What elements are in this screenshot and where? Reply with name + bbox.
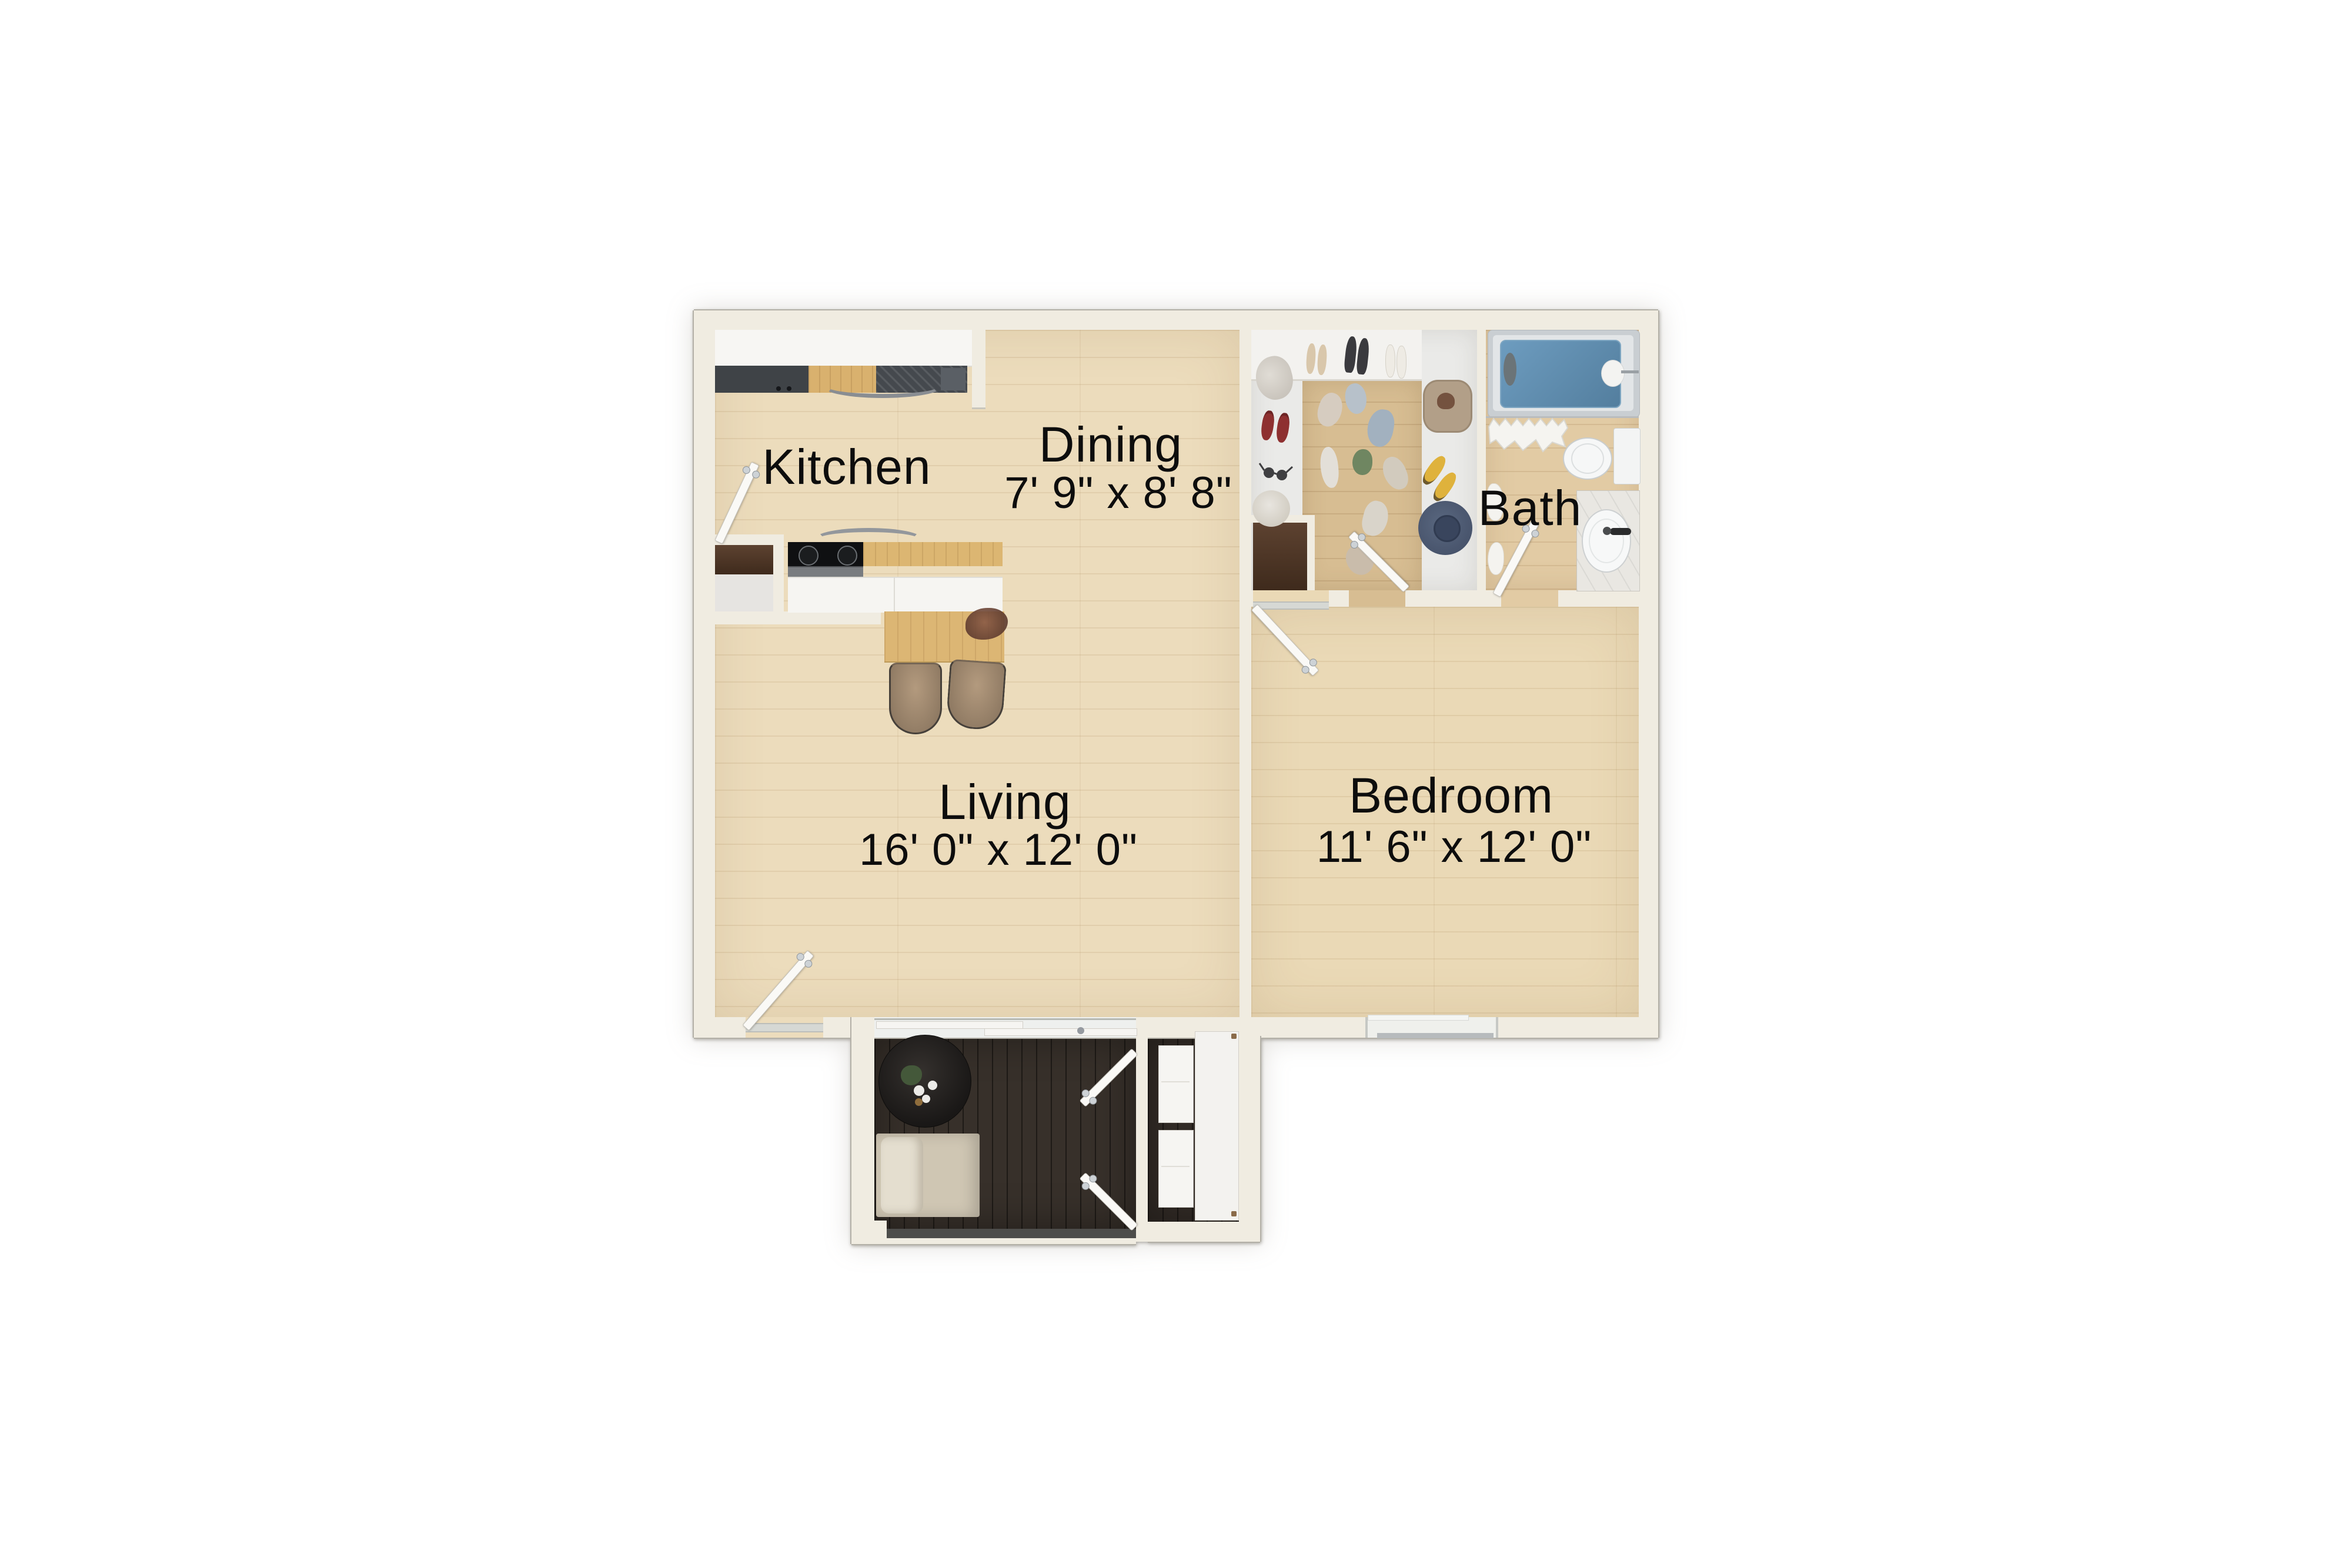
kitchen-cabinets-front	[788, 577, 1003, 613]
kitchen-counter-top	[715, 330, 972, 367]
storage-shelf-box	[1158, 1045, 1194, 1123]
kitchen-counter-dark	[715, 366, 808, 393]
bedroom-threshold	[1253, 601, 1329, 610]
patio-cup	[914, 1085, 924, 1096]
storage-shelf-box	[1158, 1130, 1194, 1208]
wall-kitchen-counter-stub	[694, 611, 881, 624]
tub-faucet	[1601, 360, 1625, 387]
wall-right	[1639, 310, 1658, 1038]
patio-bench-pillow	[881, 1137, 923, 1213]
wall-bottom	[694, 1017, 1658, 1038]
pantry-floor-light	[713, 574, 773, 611]
bath-pillow	[1504, 353, 1516, 386]
storage-door-hinge	[1231, 1034, 1237, 1039]
wall-patio-bottom-rim	[851, 1238, 1136, 1244]
bedroom-label: Bedroom	[1349, 771, 1553, 820]
floor-plan: Kitchen Dining 7' 9" x 8' 8" Bath Living…	[0, 0, 2352, 1568]
bath-label: Bath	[1478, 483, 1582, 533]
wall-divider-living-bedroom	[1240, 330, 1251, 1017]
peninsula-counter-wood	[863, 542, 1003, 566]
tub-faucet-wand	[1621, 370, 1639, 373]
white-sandal	[1396, 346, 1406, 379]
bath-door-opening	[1501, 590, 1558, 607]
toilet-seat-ring	[1571, 443, 1604, 474]
shower-curtain	[1486, 416, 1575, 477]
kitchen-label: Kitchen	[762, 442, 931, 492]
storage-door-panel	[1195, 1031, 1239, 1221]
wall-pantry-top	[694, 534, 784, 545]
white-sandal	[1385, 345, 1395, 377]
counter-knob	[787, 386, 791, 391]
sink-faucet-knob	[1603, 527, 1611, 535]
stove-burner	[799, 546, 818, 566]
wall-patio-right	[1136, 1036, 1148, 1242]
cabinet-seam	[894, 577, 895, 611]
vent-panel	[941, 368, 965, 390]
dining-chair	[889, 663, 942, 734]
living-label: Living	[938, 777, 1071, 827]
dining-label: Dining	[1039, 420, 1182, 469]
patio-cup	[928, 1081, 937, 1090]
dining-dims: 7' 9" x 8' 8"	[1004, 471, 1232, 516]
sliding-door-panel-moving	[984, 1028, 1137, 1036]
shelf-line	[1161, 1081, 1190, 1082]
hat-crown	[1434, 515, 1461, 542]
patio-round-table	[878, 1035, 971, 1128]
towel	[1488, 542, 1504, 575]
wall-patio-left-step	[874, 1221, 887, 1238]
patio-step	[887, 1229, 1136, 1238]
toilet-tank	[1613, 428, 1641, 484]
wall-closet-bath-divider	[1477, 330, 1486, 590]
basket-heart	[1437, 393, 1455, 409]
wall-left	[694, 310, 715, 1038]
sink-faucet	[1610, 528, 1631, 535]
pantry-floor-dark	[713, 545, 773, 574]
entry-threshold	[746, 1023, 823, 1032]
oven-handle-arc	[823, 375, 942, 398]
patio-cup	[922, 1095, 930, 1103]
sink-inner	[1589, 519, 1624, 563]
pouf	[1252, 490, 1290, 527]
shelf-line	[1161, 1166, 1190, 1167]
bedroom-window-sill-inner	[1368, 1015, 1469, 1021]
closet-door-opening	[1349, 590, 1405, 607]
stove-burner	[837, 546, 857, 566]
patio-saucer-brass	[915, 1098, 923, 1106]
wall-reachin-right	[1307, 515, 1315, 598]
storage-door-hinge	[1231, 1211, 1237, 1216]
wall-top	[694, 310, 1658, 330]
reach-in-closet-floor	[1253, 523, 1307, 590]
slider-track	[874, 1018, 1136, 1020]
bedroom-dims: 11' 6" x 12' 0"	[1317, 825, 1592, 870]
bathtub	[1488, 330, 1640, 417]
wall-kitchen-stub	[972, 330, 985, 409]
bedroom-window-ledge-outer	[1377, 1033, 1494, 1038]
plant-greens	[1352, 449, 1372, 475]
stove-front	[788, 566, 863, 578]
sliding-door-handle	[1077, 1027, 1084, 1034]
wall-storage-bottom	[1148, 1222, 1260, 1242]
living-dims: 16' 0" x 12' 0"	[859, 828, 1138, 872]
sunglasses-icon	[1258, 460, 1295, 484]
wall-storage-right	[1239, 1036, 1260, 1242]
wall-patio-left	[851, 1017, 874, 1244]
counter-knob	[776, 386, 781, 391]
